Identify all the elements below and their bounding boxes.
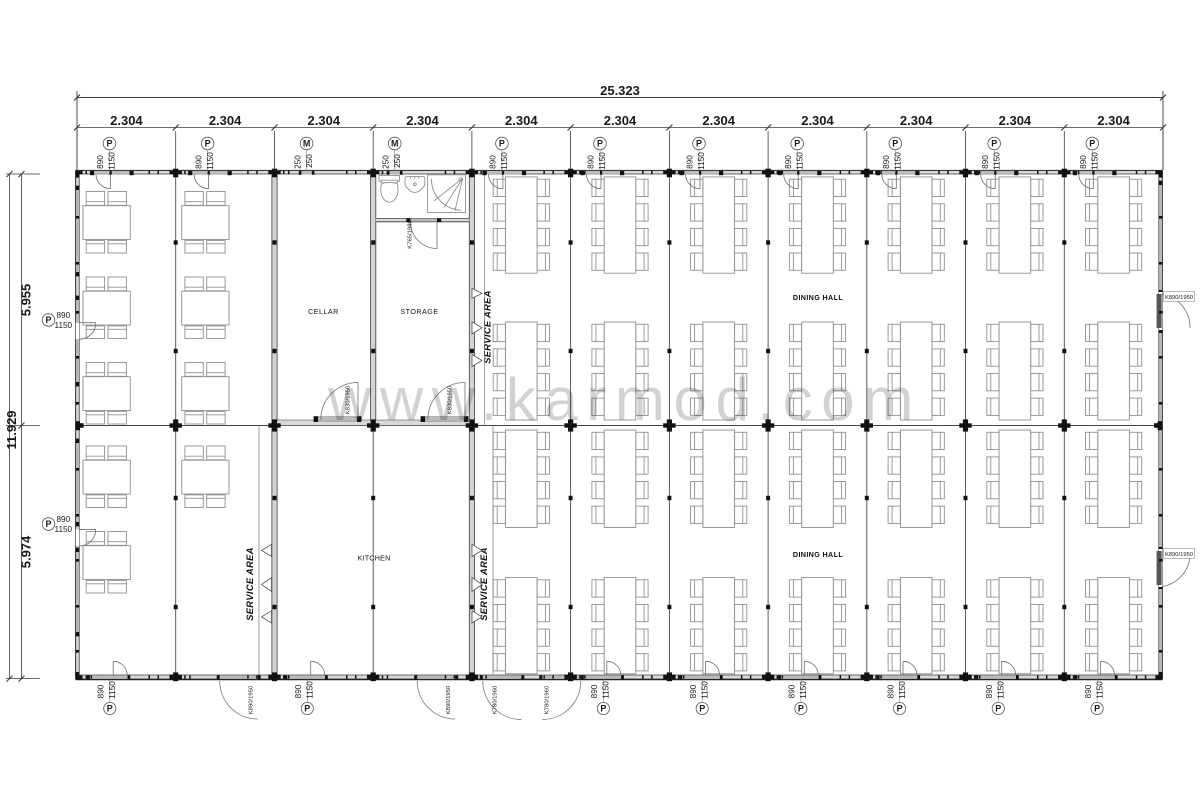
svg-text:K780/1960: K780/1960 — [545, 685, 551, 714]
svg-text:P: P — [45, 519, 51, 529]
svg-text:P: P — [205, 139, 211, 149]
svg-text:250: 250 — [293, 155, 302, 169]
svg-text:P: P — [499, 139, 505, 149]
svg-text:5.974: 5.974 — [19, 535, 34, 568]
svg-text:DINING HALL: DINING HALL — [793, 293, 843, 302]
svg-text:P: P — [794, 139, 800, 149]
svg-text:M: M — [303, 139, 311, 149]
svg-text:1150: 1150 — [799, 681, 808, 699]
svg-text:890: 890 — [194, 155, 203, 169]
svg-text:2.304: 2.304 — [604, 113, 637, 128]
svg-text:CELLAR: CELLAR — [308, 307, 339, 316]
svg-text:890: 890 — [97, 684, 106, 698]
svg-text:P: P — [597, 139, 603, 149]
svg-text:890: 890 — [1079, 155, 1088, 169]
svg-text:2.304: 2.304 — [1097, 113, 1130, 128]
svg-text:K890/1950: K890/1950 — [446, 685, 452, 714]
svg-text:1150: 1150 — [700, 681, 709, 699]
svg-text:P: P — [1089, 139, 1095, 149]
svg-text:KITCHEN: KITCHEN — [358, 554, 391, 563]
svg-text:11.929: 11.929 — [4, 410, 19, 449]
svg-text:890: 890 — [96, 155, 105, 169]
svg-text:1150: 1150 — [795, 152, 804, 170]
svg-text:890: 890 — [788, 684, 797, 698]
svg-text:P: P — [1094, 704, 1100, 714]
svg-text:2.304: 2.304 — [702, 113, 735, 128]
svg-text:250: 250 — [381, 155, 390, 169]
svg-text:1150: 1150 — [306, 681, 315, 699]
svg-text:P: P — [696, 139, 702, 149]
svg-text:2.304: 2.304 — [406, 113, 439, 128]
svg-text:890: 890 — [886, 684, 895, 698]
svg-text:SERVICE AREA: SERVICE AREA — [245, 547, 255, 621]
svg-text:1150: 1150 — [898, 681, 907, 699]
svg-text:P: P — [892, 139, 898, 149]
svg-text:890: 890 — [57, 515, 71, 524]
svg-text:890: 890 — [985, 684, 994, 698]
svg-text:1150: 1150 — [55, 321, 73, 330]
svg-text:2.304: 2.304 — [801, 113, 834, 128]
svg-text:M: M — [391, 139, 399, 149]
svg-text:1150: 1150 — [894, 152, 903, 170]
svg-text:P: P — [106, 139, 112, 149]
svg-text:P: P — [991, 139, 997, 149]
svg-text:P: P — [897, 704, 903, 714]
svg-text:250: 250 — [393, 154, 402, 168]
svg-text:K765/1980: K765/1980 — [408, 220, 414, 249]
svg-text:25.323: 25.323 — [600, 83, 640, 98]
svg-text:1150: 1150 — [602, 681, 611, 699]
svg-text:2.304: 2.304 — [900, 113, 933, 128]
svg-text:1150: 1150 — [1095, 681, 1104, 699]
svg-text:2.304: 2.304 — [999, 113, 1032, 128]
svg-text:890: 890 — [294, 684, 303, 698]
svg-text:2.304: 2.304 — [308, 113, 341, 128]
svg-text:890: 890 — [784, 155, 793, 169]
svg-text:1150: 1150 — [55, 525, 73, 534]
svg-text:2.304: 2.304 — [110, 113, 143, 128]
svg-text:1150: 1150 — [500, 152, 509, 170]
svg-text:1150: 1150 — [108, 681, 117, 699]
svg-text:1150: 1150 — [1091, 152, 1100, 170]
svg-text:P: P — [45, 315, 51, 325]
svg-text:890: 890 — [686, 155, 695, 169]
svg-text:STORAGE: STORAGE — [400, 307, 438, 316]
svg-text:P: P — [600, 704, 606, 714]
svg-text:K780/1960: K780/1960 — [493, 685, 499, 714]
svg-text:890: 890 — [590, 684, 599, 698]
svg-text:1150: 1150 — [992, 152, 1001, 170]
svg-text:1150: 1150 — [598, 152, 607, 170]
svg-text:250: 250 — [305, 154, 314, 168]
svg-text:K890/1950: K890/1950 — [1165, 552, 1193, 558]
svg-text:1150: 1150 — [697, 152, 706, 170]
svg-text:890: 890 — [882, 155, 891, 169]
svg-text:2.304: 2.304 — [505, 113, 538, 128]
svg-text:1150: 1150 — [206, 152, 215, 170]
svg-text:K890/1950: K890/1950 — [1165, 295, 1193, 301]
svg-text:2.304: 2.304 — [209, 113, 242, 128]
svg-text:890: 890 — [489, 155, 498, 169]
svg-text:890: 890 — [587, 155, 596, 169]
svg-text:1150: 1150 — [108, 152, 117, 170]
svg-text:www.karmod.com: www.karmod.com — [327, 366, 922, 433]
svg-text:DINING HALL: DINING HALL — [793, 550, 843, 559]
svg-text:P: P — [107, 704, 113, 714]
svg-text:P: P — [304, 704, 310, 714]
svg-text:1150: 1150 — [997, 681, 1006, 699]
svg-text:P: P — [798, 704, 804, 714]
svg-text:890: 890 — [1084, 684, 1093, 698]
svg-text:890: 890 — [57, 311, 71, 320]
svg-text:SERVICE AREA: SERVICE AREA — [483, 290, 493, 364]
svg-text:P: P — [699, 704, 705, 714]
svg-text:5.955: 5.955 — [19, 284, 34, 317]
svg-text:890: 890 — [689, 684, 698, 698]
svg-text:K890/1950: K890/1950 — [249, 685, 255, 714]
svg-text:890: 890 — [981, 155, 990, 169]
svg-text:P: P — [995, 704, 1001, 714]
